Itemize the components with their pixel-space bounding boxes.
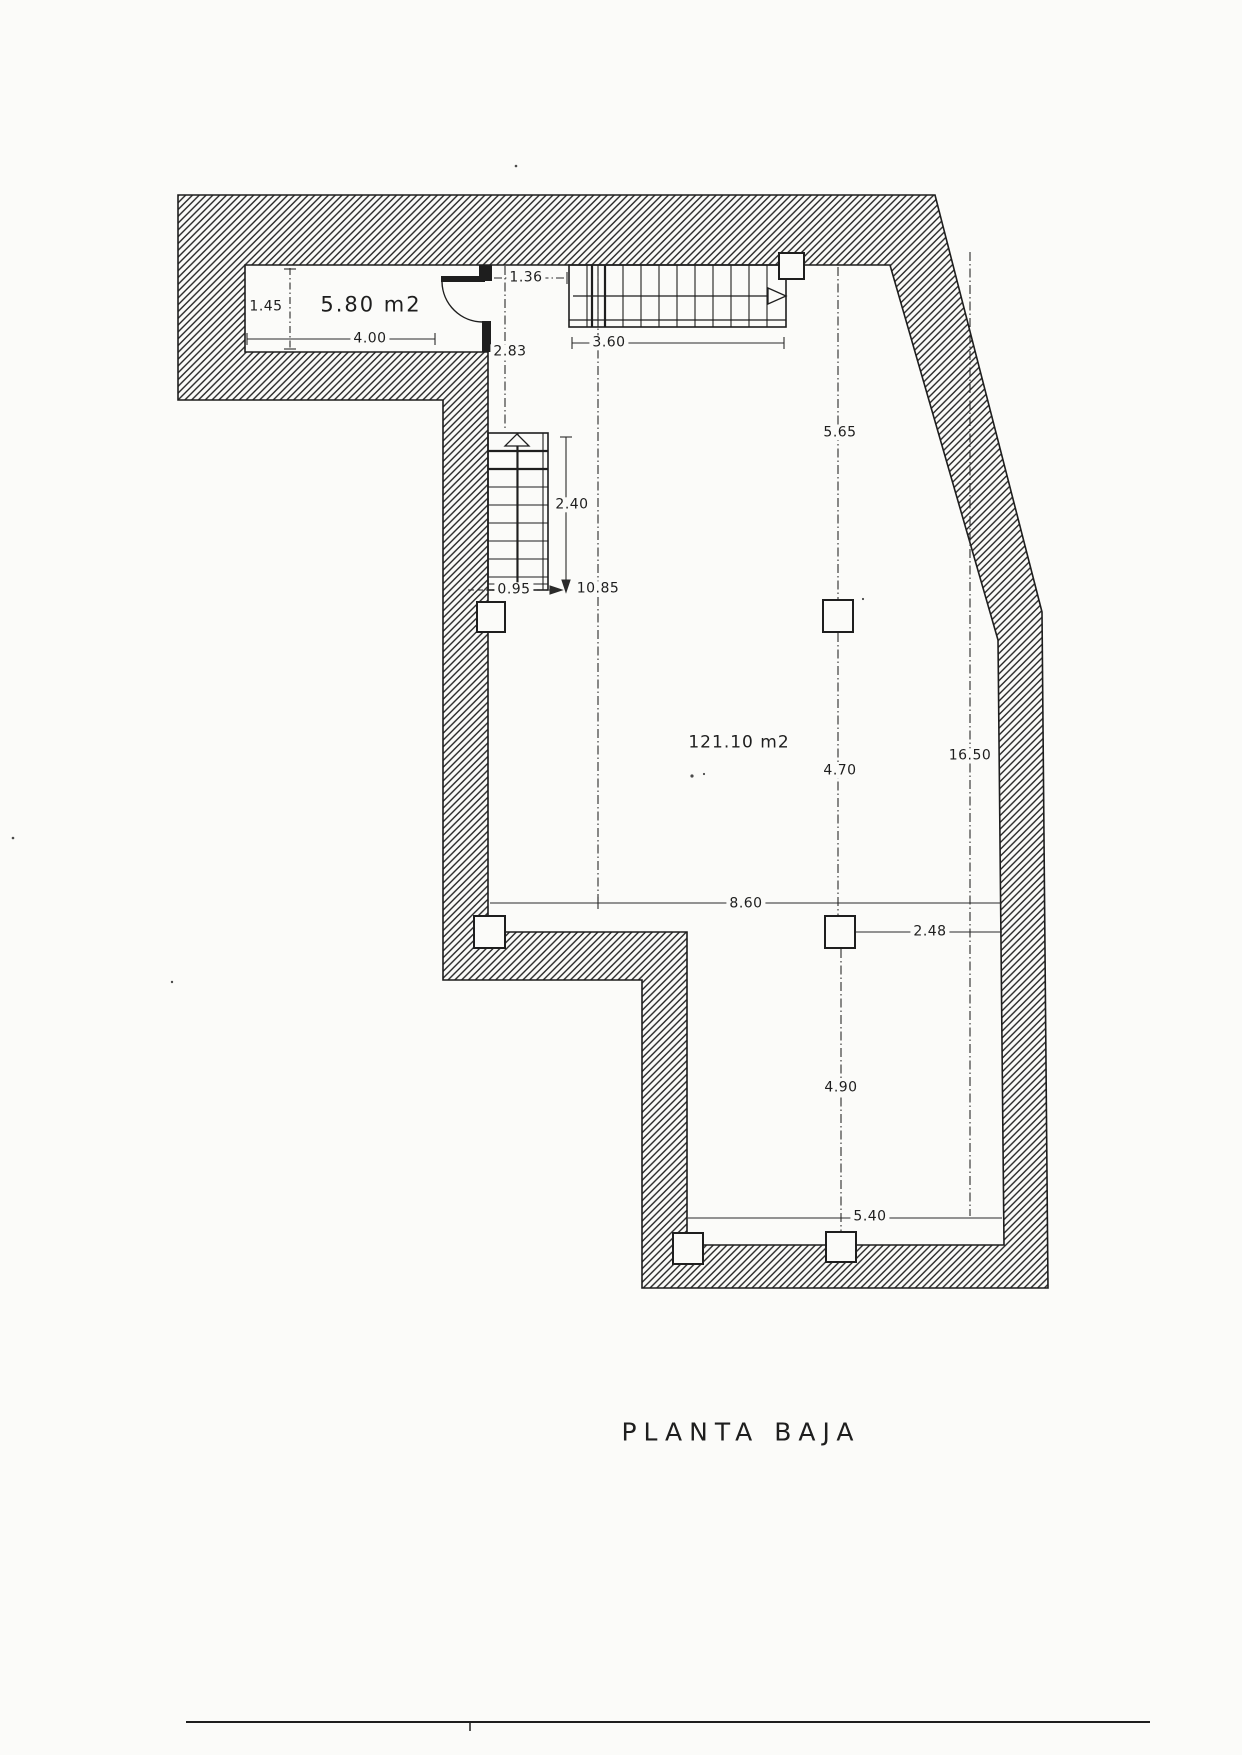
room-area-small: 5.80 m2 bbox=[317, 293, 424, 316]
door bbox=[441, 265, 492, 352]
column bbox=[826, 1232, 856, 1262]
dim-stair-width: 0.95 bbox=[494, 582, 533, 597]
column bbox=[474, 916, 505, 948]
column bbox=[477, 602, 505, 632]
dim-room-height: 1.45 bbox=[246, 299, 285, 314]
sheet-footer-line bbox=[186, 1722, 1150, 1731]
stair-up-arrow bbox=[505, 434, 529, 446]
hatched-walls bbox=[178, 195, 1048, 1288]
dimline-room-width bbox=[247, 333, 435, 345]
dim-main-width: 8.60 bbox=[726, 896, 765, 911]
floor-plan-drawing bbox=[0, 0, 1242, 1755]
stairs-top bbox=[569, 265, 786, 327]
dimline-mid-stair bbox=[560, 437, 572, 592]
dim-hall-depth: 10.85 bbox=[574, 581, 623, 596]
stairs-mid bbox=[488, 433, 548, 590]
dim-col-span-top: 5.65 bbox=[820, 425, 859, 440]
dimline-room-height bbox=[284, 268, 296, 350]
door-hinge-jamb bbox=[479, 265, 492, 281]
stair-direction-arrow bbox=[768, 288, 786, 304]
plan-title: PLANTA BAJA bbox=[618, 1418, 863, 1446]
dim-col-span-mid: 4.70 bbox=[820, 763, 859, 778]
scan-specks bbox=[12, 165, 864, 984]
column bbox=[779, 253, 804, 279]
dim-col-span-bottom: 4.90 bbox=[821, 1080, 860, 1095]
column bbox=[673, 1233, 703, 1264]
room-area-main: 121.10 m2 bbox=[685, 734, 792, 753]
drawing-sheet: 1.45 5.80 m2 4.00 1.36 2.83 3.60 2.40 0.… bbox=[0, 0, 1242, 1755]
dim-door-opening: 1.36 bbox=[506, 270, 545, 285]
door-leaf bbox=[441, 276, 485, 282]
dim-room-width: 4.00 bbox=[350, 331, 389, 346]
dim-total-depth: 16.50 bbox=[946, 748, 995, 763]
column bbox=[823, 600, 853, 632]
dim-top-stair: 3.60 bbox=[589, 335, 628, 350]
dim-col-to-wall: 2.48 bbox=[910, 924, 949, 939]
dim-entry-depth: 2.83 bbox=[490, 344, 529, 359]
door-swing-arc bbox=[442, 282, 483, 322]
dim-bottom-width: 5.40 bbox=[850, 1209, 889, 1224]
column bbox=[825, 916, 855, 948]
dim-mid-stair: 2.40 bbox=[552, 497, 591, 512]
